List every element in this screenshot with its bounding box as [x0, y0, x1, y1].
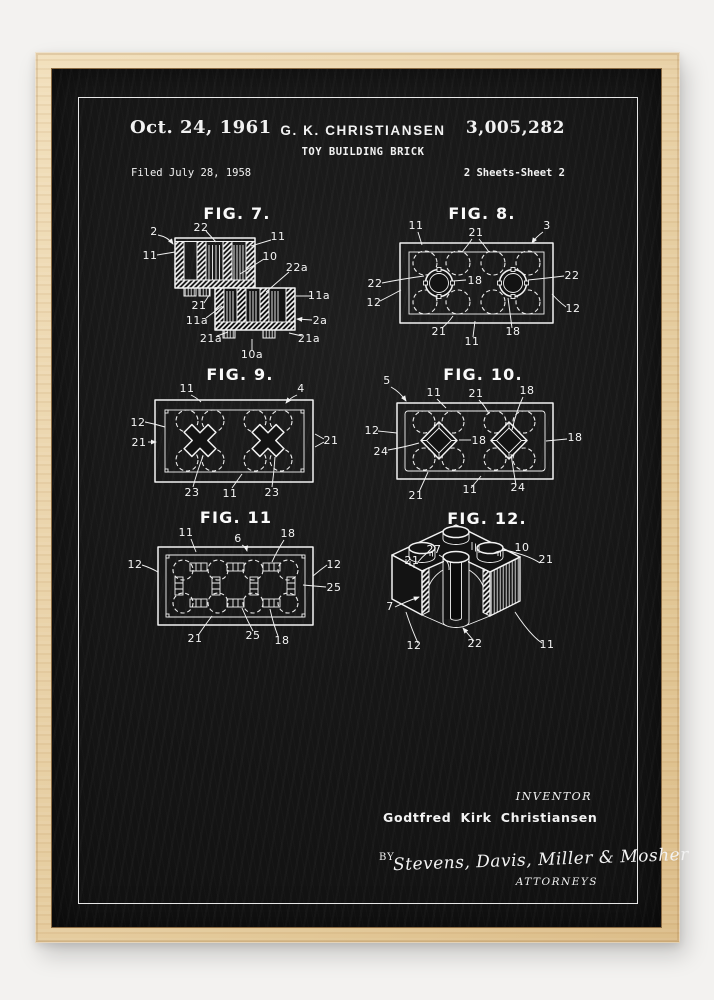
fig8-ref: 11	[409, 219, 424, 232]
patent-filed-date: Filed July 28, 1958	[131, 167, 251, 179]
fig10-ref: 21	[469, 387, 484, 400]
patent-sheet-label: 2 Sheets-Sheet 2	[464, 167, 565, 179]
fig12-ref: 10	[515, 541, 530, 554]
fig8-ref: 18	[506, 325, 521, 338]
fig7-ref: 21	[192, 299, 207, 312]
fig8-ref: 11	[465, 335, 480, 348]
fig9-ref: 11	[223, 487, 238, 500]
figure-7-drawing: FIG. 7.	[130, 195, 360, 365]
fig9-ref: 12	[131, 416, 146, 429]
fig12-ref: 12	[407, 639, 422, 652]
fig8-ref: 22	[368, 277, 383, 290]
patent-title: TOY BUILDING BRICK	[302, 146, 425, 158]
figure-12-drawing: FIG. 12.	[370, 500, 610, 670]
fig9-ref: 4	[297, 382, 305, 395]
fig7-ref: 21a	[200, 332, 222, 345]
fig10-ref: 18	[472, 434, 487, 447]
patent-number: 3,005,282	[466, 118, 565, 138]
fig7-title: FIG. 7.	[203, 204, 270, 223]
fig7-ref: 11a	[308, 289, 330, 302]
fig7-ref: 22	[194, 221, 209, 234]
fig9-leader-lines	[145, 395, 324, 488]
fig10-ref: 11	[463, 483, 478, 496]
fig9-title: FIG. 9.	[206, 365, 273, 384]
fig7-ref: 2a	[313, 314, 328, 327]
fig12-title: FIG. 12.	[447, 509, 527, 528]
fig9-ref: 21	[324, 434, 339, 447]
fig9-ref: 11	[180, 382, 195, 395]
fig11-ref: 25	[246, 629, 261, 642]
fig12-ref: 11	[540, 638, 555, 651]
fig9-brick-outline	[155, 400, 313, 482]
patent-inventor-header: G. K. CHRISTIANSEN	[280, 123, 445, 138]
fig9-ref: 23	[185, 486, 200, 499]
fig11-ref: 21	[188, 632, 203, 645]
fig11-ref: 18	[275, 634, 290, 647]
inventor-heading: INVENTOR	[516, 790, 592, 803]
fig12-ref: 21	[405, 554, 420, 567]
figure-10-drawing: FIG. 10.	[365, 360, 605, 510]
fig12-ref: 22	[468, 637, 483, 650]
fig10-ref: 24	[511, 481, 526, 494]
fig10-ref: 12	[365, 424, 380, 437]
fig11-ref: 12	[128, 558, 143, 571]
fig7-ref: 10	[263, 250, 278, 263]
fig11-ref: 25	[327, 581, 342, 594]
fig7-ref: 2	[150, 225, 158, 238]
fig9-ref: 21	[132, 436, 147, 449]
fig12-brick-perspective	[392, 525, 520, 628]
fig12-ref: 21	[539, 553, 554, 566]
inventor-name: Godtfred Kirk Christiansen	[383, 810, 598, 825]
fig11-leader-lines	[142, 539, 327, 636]
fig8-ref: 21	[432, 325, 447, 338]
fig11-stud-circles	[173, 560, 298, 613]
figure-8-drawing: FIG. 8. 1	[360, 195, 600, 360]
fig11-ref: 18	[281, 527, 296, 540]
fig9-ref: 23	[265, 486, 280, 499]
framed-patent-poster: Oct. 24, 1961 G. K. CHRISTIANSEN TOY BUI…	[0, 0, 714, 1000]
fig7-lower-brick-section	[215, 288, 295, 338]
fig12-ref: 7	[386, 600, 394, 613]
fig10-ref: 5	[383, 374, 391, 387]
fig7-ref: 11	[271, 230, 286, 243]
fig8-ref: 22	[565, 269, 580, 282]
fig12-ref: 27	[427, 543, 442, 556]
fig7-ref: 21a	[298, 332, 320, 345]
fig8-title: FIG. 8.	[448, 204, 515, 223]
fig10-title: FIG. 10.	[443, 365, 523, 384]
fig8-ref: 3	[543, 219, 551, 232]
fig10-ref: 24	[374, 445, 389, 458]
fig7-ref: 11a	[186, 314, 208, 327]
fig8-ref: 21	[469, 226, 484, 239]
fig11-ref: 6	[234, 532, 242, 545]
attorneys-label: ATTORNEYS	[516, 876, 598, 888]
patent-date: Oct. 24, 1961	[130, 117, 272, 138]
fig10-ref: 18	[520, 384, 535, 397]
fig7-ref: 22a	[286, 261, 308, 274]
fig8-ref: 12	[367, 296, 382, 309]
fig7-ref: 11	[143, 249, 158, 262]
fig10-ref: 11	[427, 386, 442, 399]
fig11-title: FIG. 11	[200, 508, 272, 527]
figure-11-drawing: FIG. 11	[115, 505, 365, 660]
fig8-ref: 12	[566, 302, 581, 315]
fig11-ref: 11	[179, 526, 194, 539]
fig8-ref: 18	[468, 274, 483, 287]
fig11-ref: 12	[327, 558, 342, 571]
figure-9-drawing: FIG. 9. 11 4 12 21 21 23	[125, 360, 365, 510]
fig10-ref: 18	[568, 431, 583, 444]
